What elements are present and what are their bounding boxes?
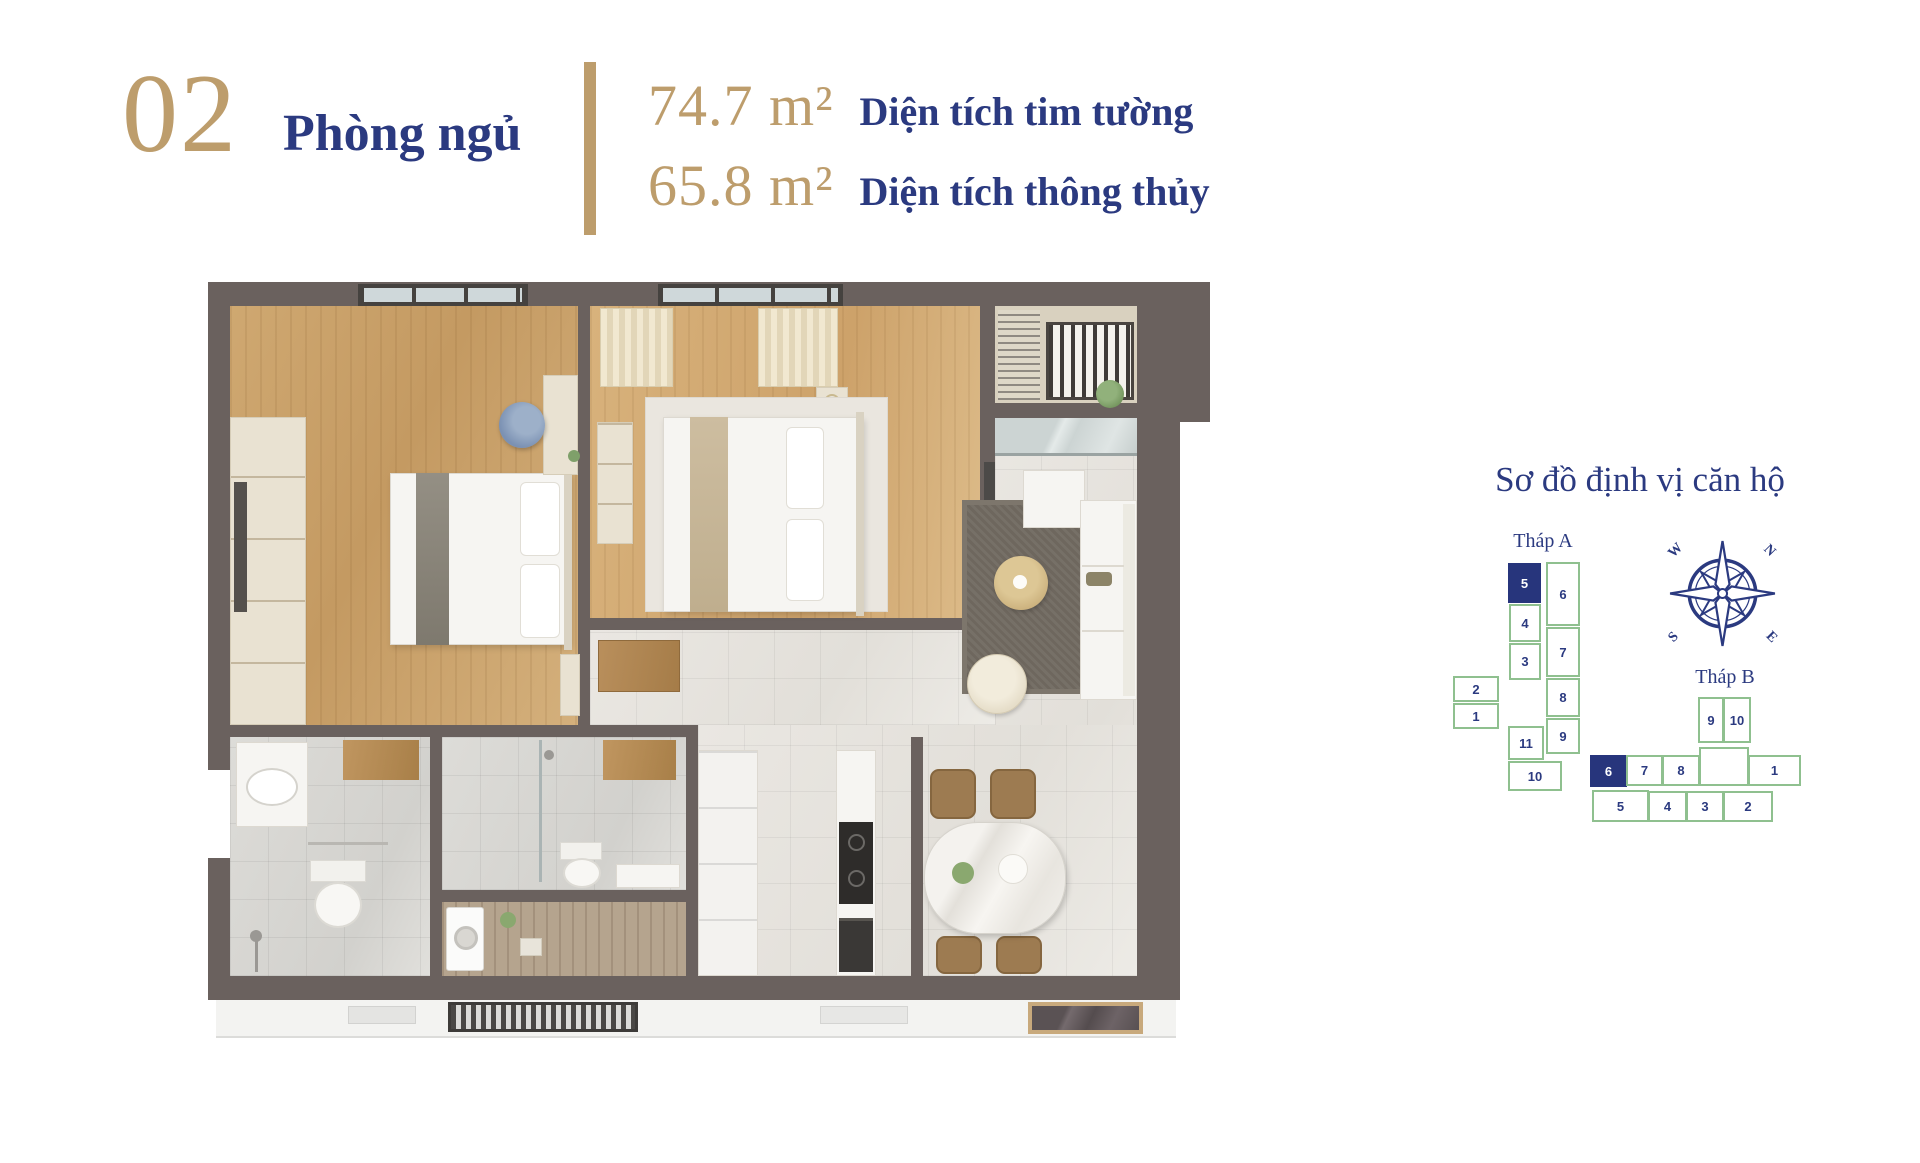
tower-a-unit-7[interactable]: 7 bbox=[1546, 627, 1580, 677]
bath2-shower-head bbox=[544, 750, 554, 760]
compass-e: E bbox=[1763, 628, 1781, 646]
dining-chair-1 bbox=[930, 769, 976, 819]
bedroom2-pillow-1 bbox=[786, 427, 824, 509]
kitchen-oven bbox=[839, 918, 873, 972]
master-headboard bbox=[564, 468, 572, 650]
area-net-label: Diện tích thông thủy bbox=[860, 168, 1210, 215]
wall-bath1-bath2 bbox=[430, 737, 442, 976]
master-chair bbox=[499, 402, 545, 448]
master-plant bbox=[568, 450, 580, 462]
dining-centerpiece bbox=[952, 862, 974, 884]
compass-n: N bbox=[1760, 541, 1779, 560]
tower-b-unit-8[interactable]: 8 bbox=[1662, 755, 1700, 786]
dining-plate bbox=[998, 854, 1028, 884]
tower-b-unit-6[interactable]: 6 bbox=[1590, 755, 1627, 787]
area-net-value: 65.8 m² bbox=[648, 152, 834, 219]
tower-a-unit-11[interactable]: 11 bbox=[1508, 726, 1544, 760]
bath1-sink bbox=[246, 768, 298, 806]
locator-title: Sơ đồ định vị căn hộ bbox=[1450, 460, 1830, 500]
tower-b-unit-3[interactable]: 3 bbox=[1686, 791, 1724, 822]
living-chaise bbox=[1023, 470, 1085, 528]
tower-b-name: Tháp B bbox=[1675, 666, 1775, 689]
kitchen-counter-left bbox=[698, 750, 758, 976]
tower-a-unit-9[interactable]: 9 bbox=[1546, 718, 1580, 754]
kitchen-burner-1 bbox=[848, 834, 865, 851]
tower-a-unit-5[interactable]: 5 bbox=[1508, 563, 1541, 603]
living-sofa-back bbox=[1123, 504, 1135, 696]
laundry-plant bbox=[500, 912, 516, 928]
entrance-doormat bbox=[1028, 1002, 1143, 1034]
hallway-cabinet bbox=[598, 640, 680, 692]
balcony-ac-grille bbox=[998, 310, 1040, 400]
bath2-toilet bbox=[563, 858, 601, 888]
wall-kitchen-dining bbox=[911, 737, 923, 976]
area-row-gross: 74.7 m² Diện tích tim tường bbox=[648, 72, 1193, 139]
balcony-plant bbox=[1096, 380, 1124, 408]
tower-a-unit-6[interactable]: 6 bbox=[1546, 562, 1580, 626]
area-gross-label: Diện tích tim tường bbox=[860, 88, 1194, 135]
master-tv bbox=[234, 482, 247, 612]
laundry-washer-door bbox=[454, 926, 478, 950]
dining-chair-3 bbox=[936, 936, 982, 974]
tower-b-unit-4[interactable]: 4 bbox=[1648, 791, 1687, 822]
bath1-shower-pipe bbox=[255, 936, 258, 972]
tower-a-unit-1[interactable]: 1 bbox=[1453, 703, 1499, 729]
living-table-decor bbox=[1013, 575, 1027, 589]
bedroom2-pillow-2 bbox=[786, 519, 824, 601]
unit-locator: Sơ đồ định vị căn hộ Tháp A 5 6 4 3 7 8 … bbox=[1450, 460, 1920, 855]
tower-b-unit-9[interactable]: 9 bbox=[1698, 697, 1724, 743]
wall-bedroom2-bottom bbox=[590, 618, 980, 630]
tower-b-unit-5[interactable]: 5 bbox=[1592, 790, 1649, 822]
living-sofa-pillow bbox=[1086, 572, 1112, 586]
bedroom2-bed-runner bbox=[690, 417, 728, 612]
tower-b-unit-7[interactable]: 7 bbox=[1626, 755, 1663, 786]
dining-chair-2 bbox=[990, 769, 1036, 819]
compass-rose: N W S E bbox=[1655, 526, 1790, 661]
bedroom2-window bbox=[663, 288, 838, 302]
dining-table bbox=[924, 822, 1066, 934]
wall-master-bottom bbox=[230, 725, 686, 737]
header-divider bbox=[584, 62, 596, 235]
compass-s: S bbox=[1665, 628, 1682, 645]
tower-a-unit-4[interactable]: 4 bbox=[1509, 604, 1541, 642]
area-row-net: 65.8 m² Diện tích thông thủy bbox=[648, 152, 1210, 219]
kitchen-burner-2 bbox=[848, 870, 865, 887]
unit-type-label: Phòng ngủ bbox=[283, 104, 521, 163]
master-nightstand bbox=[560, 654, 580, 716]
master-pillow-1 bbox=[520, 482, 560, 556]
master-bed-runner bbox=[416, 473, 449, 645]
bath1-door bbox=[343, 740, 419, 780]
tower-a-unit-10[interactable]: 10 bbox=[1508, 761, 1562, 791]
exterior-wall-top-right bbox=[1137, 282, 1210, 422]
bedroom2-headboard bbox=[856, 412, 864, 616]
living-sofa-seam-2 bbox=[1082, 630, 1124, 632]
slab-entry-recess bbox=[820, 1006, 908, 1024]
tower-b-unit-2[interactable]: 2 bbox=[1723, 791, 1773, 822]
tower-a-unit-2[interactable]: 2 bbox=[1453, 676, 1499, 702]
living-glass-door bbox=[995, 418, 1137, 456]
bath2-vanity bbox=[616, 864, 680, 888]
bath1-towel-bar bbox=[308, 842, 388, 845]
tower-b-unit-blank[interactable] bbox=[1699, 747, 1749, 786]
area-gross-value: 74.7 m² bbox=[648, 72, 834, 139]
bedroom2-curtain-left bbox=[600, 308, 673, 387]
tower-a-unit-3[interactable]: 3 bbox=[1509, 643, 1541, 680]
bath2-shower-glass bbox=[539, 740, 542, 882]
living-sofa-seam-1 bbox=[1082, 565, 1124, 567]
master-window bbox=[364, 288, 522, 302]
compass-w: W bbox=[1665, 540, 1686, 561]
bedroom2-curtain-right bbox=[758, 308, 838, 387]
master-pillow-2 bbox=[520, 564, 560, 638]
laundry-basket bbox=[520, 938, 542, 956]
bath1-toilet bbox=[314, 882, 362, 928]
slab-recess-1 bbox=[348, 1006, 416, 1024]
bath1-toilet-tank bbox=[310, 860, 366, 882]
tower-a-name: Tháp A bbox=[1498, 530, 1588, 553]
slab-ac-grille bbox=[448, 1002, 638, 1032]
unit-number: 02 bbox=[122, 58, 238, 170]
wall-bath2-laundry bbox=[442, 890, 686, 902]
floor-plan bbox=[208, 282, 1218, 1040]
bedroom2-wardrobe bbox=[597, 422, 633, 544]
bath2-door bbox=[603, 740, 676, 780]
living-armchair bbox=[967, 654, 1027, 714]
dining-chair-4 bbox=[996, 936, 1042, 974]
tower-b-unit-1[interactable]: 1 bbox=[1748, 755, 1801, 786]
tower-b-unit-10[interactable]: 10 bbox=[1723, 697, 1751, 743]
tower-a-unit-8[interactable]: 8 bbox=[1546, 678, 1580, 717]
wall-bath-kitchen bbox=[686, 725, 698, 976]
